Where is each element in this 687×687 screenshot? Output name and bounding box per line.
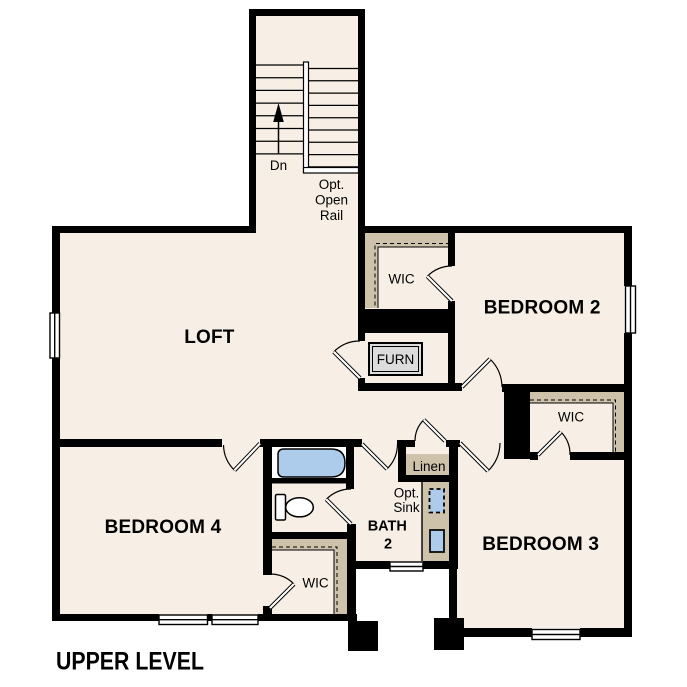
svg-text:WIC: WIC bbox=[558, 410, 584, 425]
svg-text:Rail: Rail bbox=[320, 208, 343, 223]
svg-text:UPPER LEVEL: UPPER LEVEL bbox=[56, 648, 204, 676]
svg-text:BEDROOM 2: BEDROOM 2 bbox=[484, 297, 601, 318]
svg-text:WIC: WIC bbox=[388, 272, 414, 287]
svg-text:2: 2 bbox=[384, 537, 392, 553]
svg-text:Open: Open bbox=[315, 193, 348, 208]
svg-text:Dn: Dn bbox=[270, 158, 287, 173]
svg-text:Opt.: Opt. bbox=[319, 177, 345, 192]
svg-text:LOFT: LOFT bbox=[184, 327, 235, 348]
svg-text:BEDROOM 3: BEDROOM 3 bbox=[482, 534, 599, 555]
svg-text:Opt.: Opt. bbox=[394, 486, 420, 501]
svg-text:Linen: Linen bbox=[412, 459, 445, 474]
svg-text:BATH: BATH bbox=[368, 519, 407, 535]
svg-text:WIC: WIC bbox=[302, 576, 328, 591]
svg-text:Sink: Sink bbox=[393, 500, 420, 515]
svg-text:BEDROOM 4: BEDROOM 4 bbox=[105, 517, 222, 538]
svg-text:FURN: FURN bbox=[377, 352, 415, 367]
